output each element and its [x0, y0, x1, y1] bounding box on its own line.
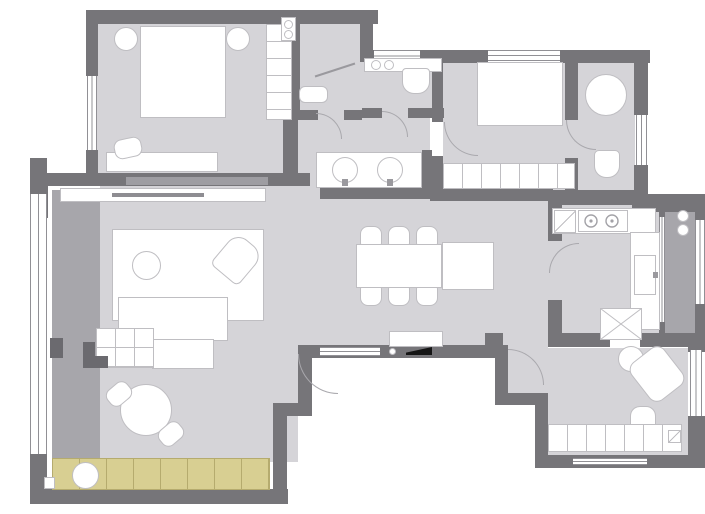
- sofa-chaise-icon: [152, 339, 214, 369]
- chair-icon: [360, 226, 382, 246]
- study-bottom-window: [573, 458, 647, 465]
- side-unit-icon: [668, 430, 681, 443]
- chair-icon: [416, 286, 438, 306]
- wall-outer-left-stub-a: [30, 158, 47, 194]
- bathroom2-window: [636, 115, 647, 165]
- tv-icon: [112, 193, 204, 197]
- balcony-window: [30, 194, 47, 454]
- washbasin-bowl-icon: [284, 20, 293, 29]
- service-window: [695, 220, 705, 304]
- wall-passage-lower: [273, 403, 287, 495]
- wall-master-hall-divider: [283, 112, 298, 177]
- wardrobe-icon: [443, 163, 575, 189]
- vanity-faucet-icon: [342, 179, 348, 186]
- nightstand-icon: [226, 27, 250, 51]
- wall-master-left-a: [86, 22, 98, 76]
- wall-bathroom2-right-a: [634, 63, 648, 115]
- chair-icon: [416, 226, 438, 246]
- shower-bench-icon: [299, 86, 328, 103]
- wc-faucet-icon: [371, 60, 381, 70]
- study-window: [690, 350, 702, 418]
- shoe-bench-icon: [389, 331, 443, 347]
- wall-top-master: [86, 10, 378, 24]
- vanity-wall-horizontal: [320, 188, 432, 199]
- doorbell-icon: [389, 348, 396, 355]
- water-heater-icon: [677, 224, 689, 236]
- toilet-icon: [594, 150, 620, 178]
- wall-study-right-b: [688, 416, 705, 466]
- sideboard-icon: [442, 242, 494, 290]
- wall-service-right-a: [695, 194, 705, 220]
- wall-bathroom2-left-a: [565, 62, 578, 120]
- chair-icon: [388, 226, 410, 246]
- plant-icon: [72, 462, 99, 489]
- bed-icon: [477, 62, 563, 126]
- wall-wc-bottom-a: [362, 108, 382, 118]
- nightstand-icon: [114, 27, 138, 51]
- coffee-table-icon: [132, 251, 161, 280]
- chair-icon: [360, 286, 382, 306]
- toilet-icon: [402, 68, 430, 94]
- chair-icon: [388, 286, 410, 306]
- cabinet-icon: [548, 424, 682, 452]
- water-heater-icon: [677, 210, 689, 222]
- wall-service-right-b: [695, 304, 705, 336]
- wc-faucet-icon: [384, 60, 394, 70]
- vanity-faucet-icon: [387, 179, 393, 186]
- washbasin-bowl-icon: [284, 30, 293, 39]
- balcony-floor: [52, 190, 100, 462]
- sliding-door-panel: [126, 177, 268, 185]
- bedroom2-window: [488, 50, 562, 61]
- bed-icon: [140, 26, 226, 118]
- master-window: [87, 76, 97, 150]
- wall-outer-bottom: [30, 489, 288, 504]
- wall-shower-bottom-a: [288, 110, 318, 120]
- fridge-icon: [600, 308, 642, 340]
- wall-shower-bottom-b: [344, 110, 362, 120]
- stove-burner-icon: [580, 212, 626, 230]
- dining-table-icon: [356, 244, 442, 288]
- column-icon: [50, 338, 63, 358]
- wall-entry-corner: [485, 333, 503, 358]
- drain-icon: [44, 477, 55, 489]
- kitchen-faucet-icon: [653, 272, 658, 278]
- floor-plan: [0, 0, 705, 514]
- side-table-icon: [83, 356, 108, 368]
- bathtub-icon: [585, 74, 627, 116]
- kitchen-hatch-cabinet-icon: [554, 210, 576, 233]
